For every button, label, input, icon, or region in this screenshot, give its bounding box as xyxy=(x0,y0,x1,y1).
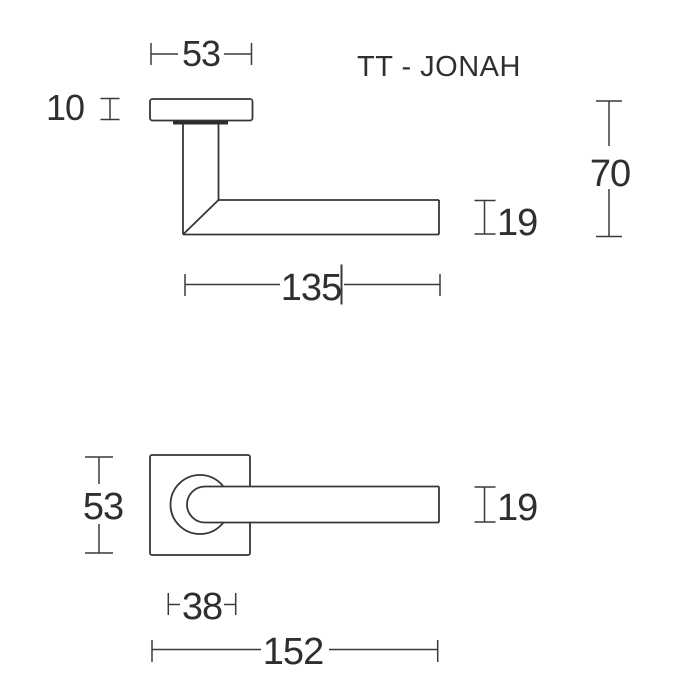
door-handle-dimension-drawing: TT - JONAH 53 10 xyxy=(0,0,700,700)
dimension-rose-thickness: 10 xyxy=(46,87,120,128)
dim-label-handle-projection: 70 xyxy=(590,153,630,195)
dim-label-grip-length: 135 xyxy=(281,267,341,309)
dim-label-grip-section-side: 19 xyxy=(497,202,537,244)
neck-elbow-diagonal xyxy=(183,200,219,235)
side-view-handle-outline xyxy=(150,99,439,235)
dimension-overall-length: 152 xyxy=(152,631,438,673)
dim-label-overall-length: 152 xyxy=(263,631,323,673)
dim-label-grip-section-front: 19 xyxy=(497,487,537,529)
dimension-rose-size: 53 xyxy=(83,457,123,553)
dimension-grip-section-side: 19 xyxy=(475,201,538,245)
rose-plate-side xyxy=(150,99,253,121)
dimension-rose-width: 38 xyxy=(168,586,235,628)
dimension-grip-length: 135 xyxy=(185,265,440,310)
drawing-title: TT - JONAH xyxy=(357,51,521,83)
dimension-handle-projection: 70 xyxy=(590,101,630,237)
dimension-grip-section-front: 19 xyxy=(475,487,538,529)
grip-body-mask xyxy=(187,487,439,523)
dim-label-rose-width: 38 xyxy=(182,586,222,628)
technical-drawing-page: TT - JONAH 53 10 xyxy=(0,0,700,700)
dimension-rose-diameter: 53 xyxy=(151,33,252,74)
dim-label-rose-diameter: 53 xyxy=(182,33,220,74)
front-view-handle-outline xyxy=(150,455,439,555)
dim-label-rose-size: 53 xyxy=(83,486,123,528)
dim-label-rose-thickness: 10 xyxy=(46,87,84,128)
